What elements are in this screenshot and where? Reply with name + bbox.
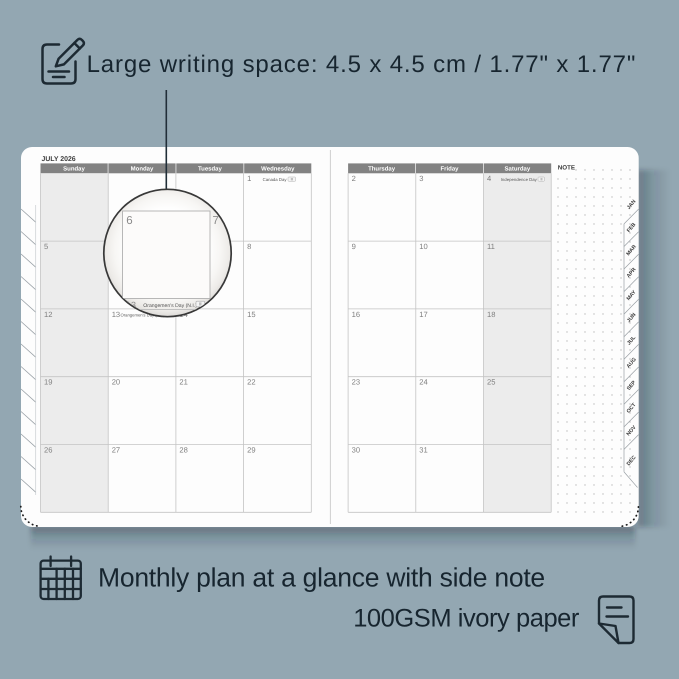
svg-text:22: 22 [247, 378, 255, 387]
svg-text:15: 15 [247, 310, 255, 319]
svg-text:9: 9 [352, 242, 356, 251]
svg-text:Monday: Monday [131, 166, 154, 173]
svg-text:Friday: Friday [440, 166, 459, 173]
svg-text:Large writing space: 4.5 x 4.5: Large writing space: 4.5 x 4.5 cm / 1.77… [87, 51, 637, 78]
svg-text:Wednesday: Wednesday [261, 166, 295, 173]
svg-text:Tuesday: Tuesday [198, 166, 223, 173]
svg-text:Sunday: Sunday [63, 166, 85, 173]
svg-text:1: 1 [247, 174, 251, 183]
svg-text:Orangemen's Day (N.I.): Orangemen's Day (N.I.) [143, 303, 197, 309]
svg-text:4: 4 [487, 174, 491, 183]
svg-text:20: 20 [112, 378, 120, 387]
svg-text:17: 17 [419, 310, 427, 319]
svg-text:23: 23 [352, 378, 360, 387]
svg-text:11: 11 [487, 242, 495, 251]
svg-text:Monthly plan at a glance with: Monthly plan at a glance with side note [98, 563, 545, 593]
svg-text:Independence Day: Independence Day [501, 177, 538, 182]
svg-text:19: 19 [44, 378, 52, 387]
svg-text:21: 21 [179, 378, 187, 387]
svg-text:10: 10 [419, 242, 427, 251]
svg-text:7: 7 [213, 215, 219, 227]
svg-text:12: 12 [44, 310, 52, 319]
svg-text:29: 29 [247, 445, 255, 454]
svg-text:26: 26 [44, 445, 52, 454]
svg-text:30: 30 [352, 445, 360, 454]
svg-text:24: 24 [419, 378, 427, 387]
svg-text:Saturday: Saturday [505, 166, 531, 173]
svg-text:18: 18 [487, 310, 495, 319]
svg-text:5: 5 [44, 242, 48, 251]
svg-text:28: 28 [179, 445, 187, 454]
svg-text:13: 13 [112, 310, 120, 319]
svg-text:16: 16 [352, 310, 360, 319]
svg-text:Canada Day: Canada Day [263, 177, 288, 182]
svg-text:3: 3 [419, 174, 423, 183]
svg-text:8: 8 [247, 242, 251, 251]
svg-text:31: 31 [419, 445, 427, 454]
svg-text:25: 25 [487, 378, 495, 387]
svg-text:27: 27 [112, 445, 120, 454]
svg-text:Thursday: Thursday [368, 166, 396, 173]
svg-text:100GSM ivory paper: 100GSM ivory paper [353, 605, 580, 633]
svg-text:2: 2 [352, 174, 356, 183]
svg-text:6: 6 [126, 215, 132, 227]
